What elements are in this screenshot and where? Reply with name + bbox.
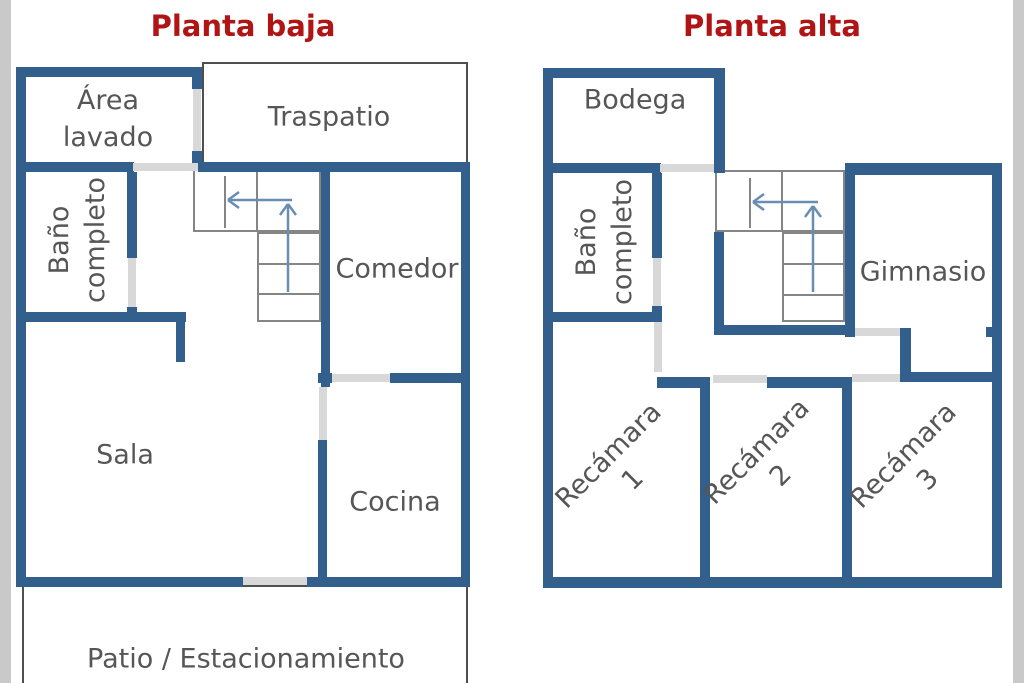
outer-wall-left	[16, 67, 26, 587]
room-label-line: 3	[911, 463, 945, 497]
bathroom-wall	[127, 172, 137, 258]
room-label-cocina: Cocina	[349, 484, 440, 521]
storage-wall-top	[543, 68, 725, 78]
gym-wall-top	[845, 163, 1002, 175]
bathroom-wall	[652, 173, 662, 258]
room-label-bano-completo: Baño completo	[569, 179, 641, 305]
room-label-patio-estacionamiento: Patio / Estacionamiento	[87, 641, 405, 678]
wall-segment	[318, 373, 332, 383]
outer-wall-bottom	[543, 577, 1002, 588]
room-label-line: Recámara	[550, 397, 668, 515]
door-opening	[654, 322, 662, 372]
outer-wall-bottom	[307, 577, 470, 587]
wall-segment	[390, 373, 470, 383]
kitchen-wall-left	[318, 440, 327, 587]
left-edge-strip	[0, 0, 11, 683]
wall-segment	[16, 162, 134, 172]
outer-wall-left	[543, 68, 553, 588]
room-label-line: Recámara	[845, 397, 963, 515]
room-label-line: completo	[607, 179, 638, 305]
stairs-direction-arrows	[715, 170, 845, 322]
door-opening	[332, 374, 390, 382]
room-label-line: 1	[616, 463, 650, 497]
wall-segment	[986, 327, 992, 337]
room-label-line: Baño	[571, 208, 602, 277]
storage-wall-right	[714, 68, 725, 173]
outer-wall-top	[16, 67, 202, 77]
door-opening	[193, 89, 201, 151]
outer-wall-right	[992, 163, 1002, 588]
right-edge-strip	[1013, 0, 1024, 683]
plan-title-planta-baja: Planta baja	[151, 9, 336, 43]
door-opening	[653, 258, 661, 306]
plan-title-planta-alta: Planta alta	[683, 9, 861, 43]
wall-segment	[176, 322, 185, 362]
room-label-line: completo	[80, 177, 111, 303]
bathroom-wall-bottom	[16, 312, 186, 322]
room-label-recamara-3: Recámara 3	[844, 396, 988, 540]
wall-segment	[543, 163, 661, 173]
room-label-recamara-1: Recámara 1	[549, 396, 693, 540]
outer-wall-bottom	[16, 577, 243, 587]
stairwell-wall-left	[714, 232, 724, 335]
room-label-recamara-2: Recámara 2	[697, 392, 841, 536]
door-opening	[713, 375, 767, 383]
stairwell-wall-bottom	[714, 325, 853, 335]
room-label-line: lavado	[63, 122, 153, 153]
room-label-comedor: Comedor	[335, 251, 458, 288]
wall-segment	[198, 162, 470, 172]
door-opening	[133, 163, 198, 171]
gym-wall-left	[845, 165, 855, 337]
wall-segment	[192, 67, 202, 89]
room-label-bodega: Bodega	[584, 82, 686, 119]
room-label-line: Baño	[44, 206, 75, 275]
room-label-sala: Sala	[96, 437, 154, 474]
door-opening	[852, 374, 900, 382]
room-label-line: Área	[77, 85, 139, 116]
bedroom-divider-wall	[842, 377, 852, 587]
room-label-traspatio: Traspatio	[268, 99, 391, 136]
bathroom-wall-bottom	[543, 312, 661, 322]
door-opening	[319, 387, 327, 440]
room-label-bano-completo: Baño completo	[42, 177, 114, 303]
room-label-gimnasio: Gimnasio	[860, 254, 986, 291]
door-opening	[128, 258, 136, 307]
room-label-line: Recámara	[698, 393, 816, 511]
room-label-line: 2	[764, 459, 798, 493]
door-opening	[855, 328, 900, 336]
dining-wall-left	[321, 168, 330, 387]
bedroom2-wall-top	[767, 377, 852, 388]
bedroom3-wall-top	[907, 372, 1002, 382]
stairs-direction-arrows	[193, 168, 321, 322]
room-label-area-lavado: Área lavado	[63, 82, 153, 156]
door-opening	[243, 577, 307, 585]
floorplan-canvas: Planta baja Área lavado Traspatio	[0, 0, 1024, 683]
door-opening	[660, 164, 714, 172]
